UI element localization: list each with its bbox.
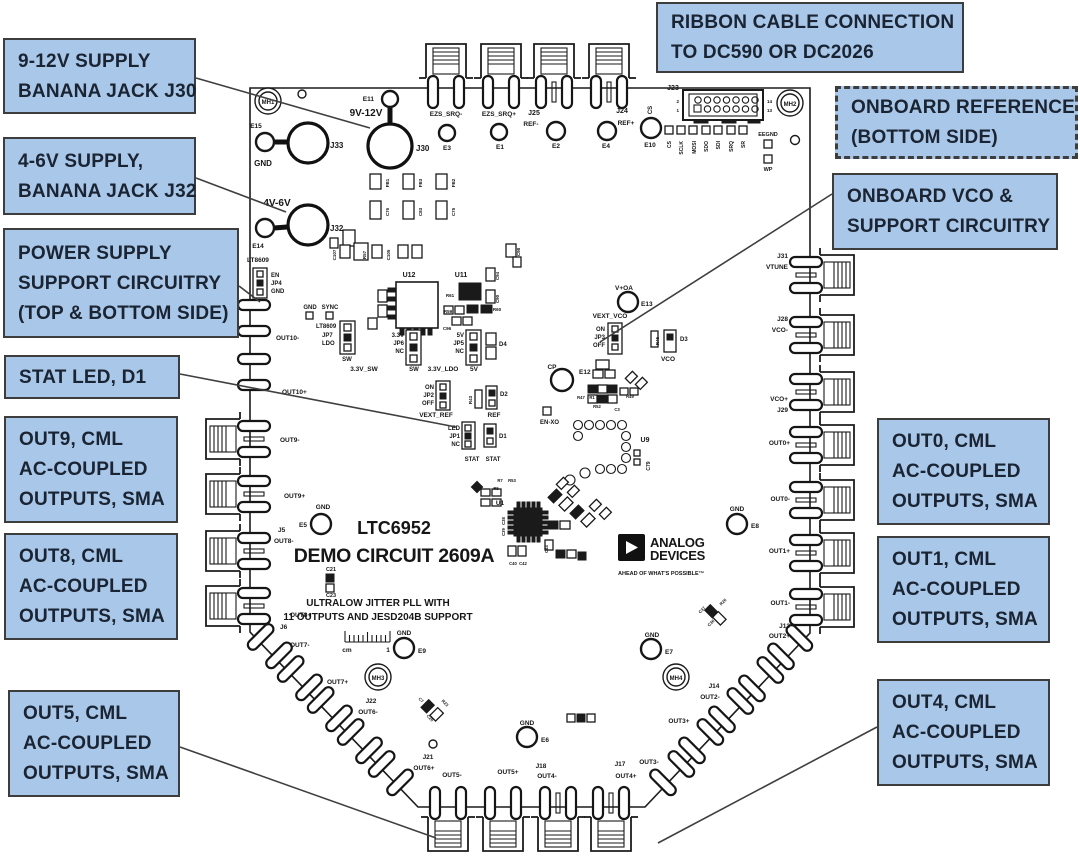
silkscreen-label: R53 [508, 478, 516, 483]
silkscreen-label: J33 [330, 141, 344, 150]
silkscreen-label: C75 [451, 207, 456, 216]
silkscreen-label: CS [667, 140, 673, 148]
silkscreen-label: OUT8- [274, 538, 294, 545]
led-d3 [664, 330, 676, 352]
callout-line: BANANA JACK J30 [18, 82, 194, 101]
callout-line: STAT LED, D1 [19, 368, 178, 387]
silkscreen-label: E12 [579, 369, 591, 376]
silkscreen-label: SDI [716, 140, 722, 149]
callout-out5: OUT5, CML AC-COUPLED OUTPUTS, SMA [8, 690, 180, 797]
jumper-jp3 [608, 323, 622, 354]
silkscreen-label: C94 [495, 271, 500, 280]
silkscreen-label: J14 [709, 683, 720, 690]
callout-supply-9-12v: 9-12V SUPPLY BANANA JACK J30 [3, 38, 196, 114]
silkscreen-label: MH2 [784, 102, 797, 108]
silkscreen-label: JP1 [449, 434, 460, 440]
silkscreen-label: E15 [250, 123, 262, 130]
callout-line: OUTPUTS, SMA [892, 610, 1048, 629]
silkscreen-label: VCO+ [770, 396, 788, 403]
silkscreen-label: GND [645, 632, 660, 639]
callout-out1: OUT1, CML AC-COUPLED OUTPUTS, SMA [877, 536, 1050, 643]
callout-line: OUT1, CML [892, 550, 1048, 569]
callout-line: (BOTTOM SIDE) [851, 128, 1075, 147]
silkscreen-label: 3.3V [392, 333, 404, 339]
silkscreen-label: E6 [541, 737, 549, 744]
silkscreen-label: OFF [593, 343, 605, 349]
jumper-jp1 [462, 422, 475, 449]
silkscreen-label: JP7 [322, 333, 333, 339]
board-subtitle-2: 11 OUTPUTS AND JESD204B SUPPORT [283, 612, 472, 623]
silkscreen-label: OUT10- [276, 335, 299, 342]
callout-line: OUT4, CML [892, 693, 1048, 712]
callout-line: OUTPUTS, SMA [19, 490, 176, 509]
silkscreen-label: ON [425, 385, 434, 391]
silkscreen-label: 4V-6V [263, 198, 291, 209]
callout-line: OUTPUTS, SMA [892, 492, 1048, 511]
silkscreen-label: C21 [326, 567, 336, 573]
silkscreen-label: U1 [496, 500, 505, 507]
silkscreen-label: J18 [536, 763, 547, 770]
silkscreen-label: REF- [523, 121, 538, 128]
silkscreen-label: C79 [646, 461, 652, 470]
silkscreen-label: GND [316, 504, 331, 511]
silkscreen-label: E8 [751, 523, 759, 530]
silkscreen-label: E1 [496, 144, 504, 151]
jumper-jp7 [340, 321, 355, 354]
callout-line: (TOP & BOTTOM SIDE) [18, 304, 237, 323]
silkscreen-label: R43 [468, 395, 473, 404]
silkscreen-label: OUT4+ [615, 773, 636, 780]
silkscreen-label: GND [520, 720, 535, 727]
silkscreen-label: VTUNE [766, 264, 789, 271]
jumper-jp2 [436, 381, 450, 410]
silkscreen-label: C3 [614, 407, 620, 412]
silkscreen-label: FB3 [418, 178, 423, 187]
callout-line: OUTPUTS, SMA [892, 753, 1048, 772]
silkscreen-label: C44 [544, 544, 549, 552]
silkscreen-label: J25 [528, 110, 540, 117]
main-ic-u1 [508, 502, 548, 542]
callout-line: 9-12V SUPPLY [18, 52, 194, 71]
callout-line: ONBOARD VCO & [847, 187, 1056, 206]
silkscreen-label: OUT8+ [290, 612, 311, 619]
silkscreen-label: R60 [493, 307, 502, 312]
silkscreen-label: C105 [386, 249, 391, 260]
silkscreen-label: U9 [641, 437, 650, 444]
silkscreen-label: C96 [443, 326, 452, 331]
silkscreen-label: C39 [501, 527, 506, 535]
diagram-stage: LTC6952 DEMO CIRCUIT 2609A ULTRALOW JITT… [0, 0, 1080, 857]
silkscreen-label: U12 [403, 272, 416, 279]
silkscreen-label: R1 [589, 395, 595, 400]
silkscreen-label: SRQ [729, 141, 735, 152]
silkscreen-label: C83 [418, 207, 423, 216]
silkscreen-label: VCO- [772, 327, 788, 334]
silkscreen-label: EN [271, 273, 279, 279]
silkscreen-label: C40 [509, 561, 517, 566]
silkscreen-label: J31 [777, 253, 788, 260]
silkscreen-label: D3 [680, 337, 688, 343]
silkscreen-label: NC [395, 349, 404, 355]
silkscreen-label: E9 [418, 648, 426, 655]
silkscreen-label: STAT [486, 457, 501, 463]
silkscreen-label: E3 [443, 145, 451, 152]
silkscreen-label: C42 [519, 561, 527, 566]
analog-devices-logo: ANALOG DEVICES AHEAD OF WHAT'S POSSIBLE™ [618, 534, 706, 577]
silkscreen-label: D1 [499, 434, 507, 440]
jumper-jp5 [466, 330, 481, 365]
silkscreen-label: R45 [655, 336, 660, 345]
silkscreen-label: 9V-12V [350, 108, 383, 119]
jumper-jp6 [406, 330, 421, 365]
callout-power-support: POWER SUPPLY SUPPORT CIRCUITRY (TOP & BO… [3, 228, 239, 338]
silkscreen-label: EZS_SRQ- [430, 111, 463, 118]
silkscreen-label: OUT0- [771, 496, 791, 503]
silkscreen-label: D2 [500, 392, 508, 398]
silkscreen-label: JP2 [423, 393, 434, 399]
silkscreen-label: R49 [626, 394, 634, 399]
callout-out0: OUT0, CML AC-COUPLED OUTPUTS, SMA [877, 418, 1050, 525]
silkscreen-label: JP5 [453, 341, 464, 347]
silkscreen-label: GND [730, 506, 745, 513]
board-subtitle-1: ULTRALOW JITTER PLL WITH [306, 598, 450, 609]
silkscreen-label: GND [271, 289, 285, 295]
silkscreen-label: EZS_SRQ+ [482, 111, 516, 118]
silkscreen-label: MH4 [670, 676, 683, 682]
callout-line: ONBOARD REFERENCE [851, 98, 1075, 117]
silkscreen-label: CS [648, 106, 654, 114]
silkscreen-label: R61 [446, 293, 455, 298]
silkscreen-label: J29 [777, 407, 788, 414]
silkscreen-label: E2 [552, 143, 560, 150]
silkscreen-label: 3.3V_SW [350, 366, 378, 373]
silkscreen-label: GND [397, 630, 412, 637]
silkscreen-label: MOSI [692, 140, 698, 153]
silkscreen-label: E11 [363, 96, 375, 103]
silkscreen-label: OUT5+ [497, 769, 518, 776]
silkscreen-label: SYNC [322, 305, 339, 311]
silkscreen-label: STAT [465, 457, 480, 463]
silkscreen-label: C76 [385, 207, 390, 216]
silkscreen-label: OUT1+ [769, 548, 790, 555]
silkscreen-label: SR [741, 141, 747, 148]
logo-tagline: AHEAD OF WHAT'S POSSIBLE™ [618, 571, 704, 577]
silkscreen-label: 5V [470, 366, 479, 373]
logo-line-2: DEVICES [650, 548, 706, 563]
callout-line: OUT5, CML [23, 704, 178, 723]
callout-out9: OUT9, CML AC-COUPLED OUTPUTS, SMA [4, 416, 178, 523]
silkscreen-label: GND [303, 305, 317, 311]
silkscreen-label: VEXT_REF [419, 412, 453, 419]
silkscreen-label: C90 [495, 294, 500, 303]
callout-line: AC-COUPLED [892, 580, 1048, 599]
silkscreen-label: R5 [493, 486, 499, 491]
silkscreen-label: E10 [644, 142, 656, 149]
silkscreen-label: E7 [665, 649, 673, 656]
callout-line: POWER SUPPLY [18, 244, 237, 263]
silkscreen-label: GND [254, 159, 272, 168]
silkscreen-label: JP6 [393, 341, 404, 347]
silkscreen-label: R7 [497, 478, 503, 483]
silkscreen-label: J22 [366, 698, 377, 705]
silkscreen-label: E14 [252, 243, 264, 250]
silkscreen-label: OUT6- [358, 709, 378, 716]
silkscreen-label: WP [764, 167, 773, 173]
silkscreen-label: J21 [423, 754, 434, 761]
silkscreen-label: 13 [767, 108, 773, 113]
silkscreen-label: EEGND [758, 132, 778, 138]
silkscreen-label: REF [488, 412, 501, 419]
callout-stat-led: STAT LED, D1 [4, 355, 180, 399]
board-title-2: DEMO CIRCUIT 2609A [294, 545, 495, 567]
silkscreen-label: R52 [593, 404, 601, 409]
silkscreen-label: CP [547, 364, 557, 371]
silkscreen-label: J13 [779, 623, 790, 630]
callout-onboard-vco: ONBOARD VCO & SUPPORT CIRCUITRY [832, 173, 1058, 250]
callout-line: OUT8, CML [19, 547, 176, 566]
silkscreen-label: REF+ [618, 120, 635, 127]
jumper-jp4 [253, 268, 267, 298]
silkscreen-label: J28 [777, 316, 788, 323]
silkscreen-label: OUT1- [771, 600, 791, 607]
ruler-mark: 1 [386, 647, 390, 654]
silkscreen-label: D4 [499, 342, 507, 348]
silkscreen-label: FB1 [385, 178, 390, 187]
silkscreen-label: J23 [667, 85, 679, 92]
callout-line: AC-COUPLED [23, 734, 178, 753]
silkscreen-label: SW [409, 367, 419, 373]
silkscreen-label: OUT7- [290, 642, 310, 649]
silkscreen-label: U11 [455, 272, 468, 279]
silkscreen-label: SW [342, 357, 352, 363]
silkscreen-label: LT8609 [247, 257, 269, 264]
silkscreen-label: J32 [330, 224, 344, 233]
callout-ribbon-cable: RIBBON CABLE CONNECTION TO DC590 OR DC20… [656, 2, 964, 73]
silkscreen-label: SDO [704, 141, 710, 152]
silkscreen-label: 3.3V_LDO [428, 366, 459, 373]
silkscreen-label: OUT0+ [769, 440, 790, 447]
callout-line: AC-COUPLED [19, 460, 176, 479]
silkscreen-label: R47 [577, 395, 585, 400]
silkscreen-label: OUT3+ [668, 718, 689, 725]
silkscreen-label: OUT2+ [769, 633, 790, 640]
silkscreen-label: C38 [501, 516, 506, 524]
silkscreen-label: OUT9- [280, 437, 300, 444]
silkscreen-label: OUT9+ [284, 493, 305, 500]
callout-line: OUT9, CML [19, 430, 176, 449]
callout-out8: OUT8, CML AC-COUPLED OUTPUTS, SMA [4, 533, 178, 640]
silkscreen-label: J6 [280, 624, 288, 631]
callout-line: RIBBON CABLE CONNECTION [671, 13, 962, 32]
silkscreen-label: NC [451, 442, 460, 448]
silkscreen-label: OUT4- [537, 773, 557, 780]
silkscreen-label: R51 [599, 395, 607, 400]
callout-line: OUTPUTS, SMA [23, 764, 178, 783]
silkscreen-label: 5V [457, 333, 464, 339]
silkscreen-label: LT8609 [316, 324, 337, 330]
silkscreen-label: OUT7+ [327, 679, 348, 686]
silkscreen-label: J5 [278, 527, 286, 534]
silkscreen-label: R59 [444, 309, 453, 314]
silkscreen-label: MH3 [372, 676, 385, 682]
silkscreen-label: C23 [326, 593, 336, 599]
silkscreen-label: OUT2- [700, 694, 720, 701]
silkscreen-label: E13 [641, 301, 653, 308]
callout-line: SUPPORT CIRCUITRY [847, 217, 1056, 236]
silkscreen-label: OUT5- [442, 772, 462, 779]
silkscreen-label: NC [455, 349, 464, 355]
callout-onboard-reference: ONBOARD REFERENCE (BOTTOM SIDE) [835, 86, 1078, 159]
callout-line: OUT0, CML [892, 432, 1048, 451]
silkscreen-label: OUT6+ [413, 765, 434, 772]
silkscreen-label: E5 [299, 522, 307, 529]
callout-supply-4-6v: 4-6V SUPPLY, BANANA JACK J32 [3, 137, 196, 215]
silkscreen-label: VEXT_VCO [593, 313, 628, 320]
callout-line: AC-COUPLED [19, 577, 176, 596]
ruler-unit: cm [342, 647, 352, 654]
led-d2 [486, 386, 497, 409]
silkscreen-label: ON [596, 327, 605, 333]
callout-line: SUPPORT CIRCUITRY [18, 274, 237, 293]
silkscreen-label: FB2 [451, 178, 456, 187]
board-title-1: LTC6952 [357, 518, 431, 538]
silkscreen-label: R57 [362, 250, 367, 259]
silkscreen-label: 14 [767, 99, 773, 104]
board-outline [250, 88, 810, 807]
silkscreen-label: J24 [616, 108, 628, 115]
callout-line: OUTPUTS, SMA [19, 607, 176, 626]
silkscreen-label: JP4 [271, 281, 282, 287]
callout-line: 4-6V SUPPLY, [18, 152, 194, 171]
silkscreen-label: C98 [516, 247, 521, 256]
silkscreen-label: C107 [332, 249, 337, 260]
silkscreen-label: J17 [615, 761, 626, 768]
silkscreen-label: EN-XO [540, 420, 559, 426]
silkscreen-label: OFF [422, 401, 434, 407]
silkscreen-label: VCO [661, 356, 675, 363]
silkscreen-label: V+OA [615, 285, 633, 292]
silkscreen-label: SCLK [679, 141, 685, 155]
callout-line: TO DC590 OR DC2026 [671, 43, 962, 62]
callout-line: BANANA JACK J32 [18, 182, 194, 201]
callout-line: AC-COUPLED [892, 723, 1048, 742]
callout-line: AC-COUPLED [892, 462, 1048, 481]
silkscreen-label: J30 [416, 144, 430, 153]
silkscreen-label: LDO [322, 341, 335, 347]
callout-out4: OUT4, CML AC-COUPLED OUTPUTS, SMA [877, 679, 1050, 786]
silkscreen-label: E4 [602, 143, 610, 150]
silkscreen-label: OUT3- [639, 759, 659, 766]
led-d1 [484, 424, 496, 447]
